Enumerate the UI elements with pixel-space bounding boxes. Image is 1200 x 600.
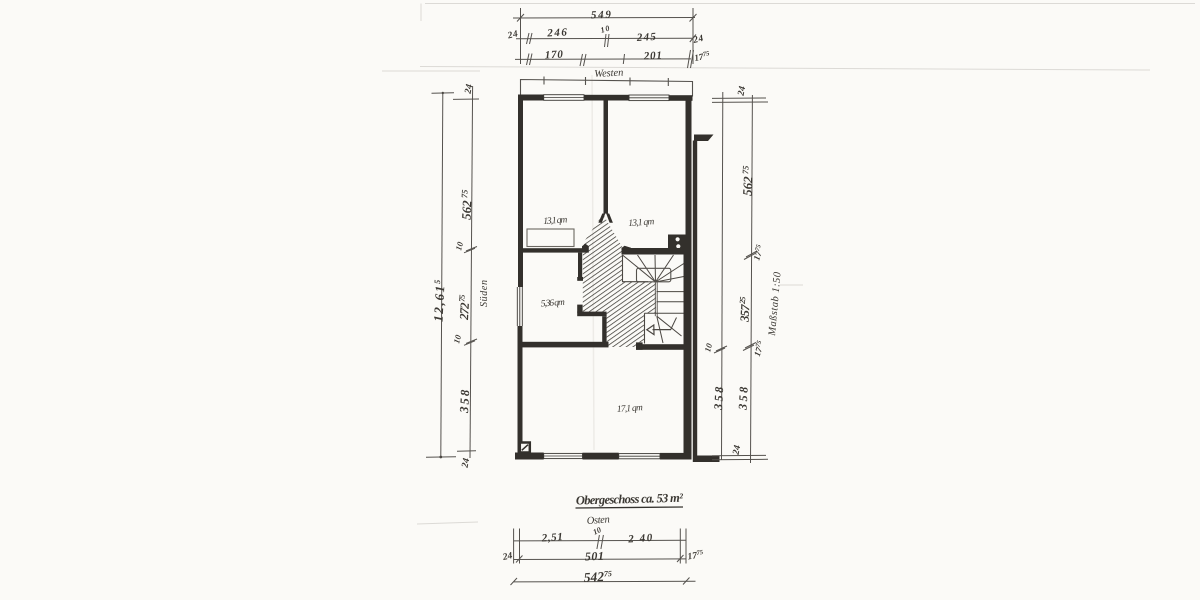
svg-text:501: 501 [585, 549, 604, 564]
svg-text:246: 246 [546, 26, 568, 39]
svg-text:24: 24 [731, 444, 743, 456]
svg-text:24: 24 [460, 457, 472, 469]
svg-text:549: 549 [591, 9, 612, 22]
svg-text:245: 245 [636, 31, 657, 44]
svg-text:358: 358 [457, 389, 472, 414]
svg-text:358: 358 [711, 386, 726, 411]
svg-text:13,1 qm: 13,1 qm [543, 215, 568, 227]
svg-text:201: 201 [643, 50, 663, 63]
svg-text:5,36 qm: 5,36 qm [541, 298, 566, 310]
svg-text:358: 358 [735, 386, 750, 411]
svg-text:Obergeschoss ca. 53 m²: Obergeschoss ca. 53 m² [576, 491, 684, 508]
svg-text:2 40: 2 40 [627, 532, 653, 546]
svg-text:17,1 qm: 17,1 qm [617, 403, 644, 415]
svg-text:170: 170 [545, 49, 564, 62]
svg-text:24: 24 [463, 83, 475, 95]
svg-text:13,1 qm: 13,1 qm [628, 217, 655, 229]
svg-text:24: 24 [736, 85, 748, 97]
svg-text:2,51: 2,51 [540, 531, 563, 545]
svg-text:Westen: Westen [594, 67, 624, 80]
svg-text:Süden: Süden [479, 280, 490, 307]
